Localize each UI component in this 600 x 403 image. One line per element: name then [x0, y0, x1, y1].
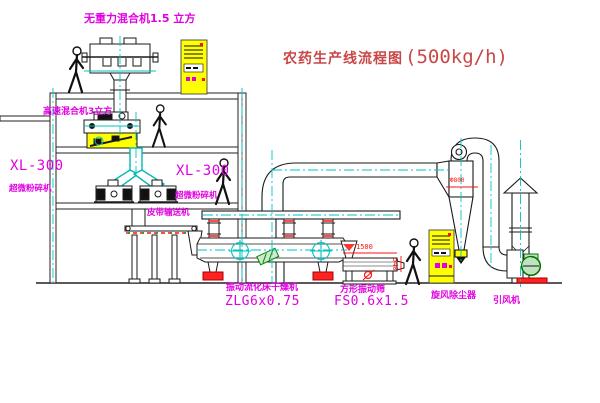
label-xl300-right-model: XL-300 [176, 164, 230, 178]
dryer-stubs [207, 219, 335, 238]
induced-draft-fan [507, 250, 547, 283]
flow-diagram-canvas: 农药生产线流程图 (500kg/h) 无重力混合机1.5 立方 高速混合机3立方… [0, 0, 600, 403]
worker-figure-ground [406, 239, 420, 284]
pulverizer-right [138, 180, 178, 202]
label-xl300-left-model: XL-300 [10, 159, 64, 173]
label-dryer-name: 振动流化床干燥机 [226, 284, 298, 293]
worker-figure-floor2 [153, 105, 166, 147]
worker-figure-roof [69, 47, 83, 92]
high-speed-mixer [84, 112, 140, 148]
label-cyclone: 旋风除尘器 [431, 292, 476, 301]
diagram-title: 农药生产线流程图 (500kg/h) [283, 46, 508, 68]
label-fan: 引风机 [493, 297, 520, 306]
label-belt-conveyor: 皮带输送机 [147, 209, 190, 218]
dim-cyclone-phi800: Ф800 [450, 178, 464, 184]
label-xl300-right-name: 超微粉碎机 [175, 192, 218, 201]
label-xl300-left-name: 超微粉碎机 [9, 185, 52, 194]
control-cabinet-right [429, 230, 454, 283]
label-gravity-free-mixer: 无重力混合机1.5 立方 [84, 13, 195, 24]
title-capacity: (500kg/h) [405, 46, 508, 68]
belt-conveyor [125, 209, 202, 283]
label-high-speed-mixer: 高速混合机3立方 [43, 108, 112, 117]
pulverizer-left [94, 180, 134, 202]
label-sieve-model: FS0.6x1.5 [334, 295, 409, 308]
title-chinese: 农药生产线流程图 [283, 48, 403, 68]
dim-sieve-540: 540 [391, 258, 398, 271]
control-cabinet-top [181, 40, 207, 94]
label-dryer-model: ZLG6x0.75 [225, 295, 300, 308]
dim-sieve-1500: 1500 [356, 244, 373, 251]
cyclone-separator [446, 138, 507, 271]
